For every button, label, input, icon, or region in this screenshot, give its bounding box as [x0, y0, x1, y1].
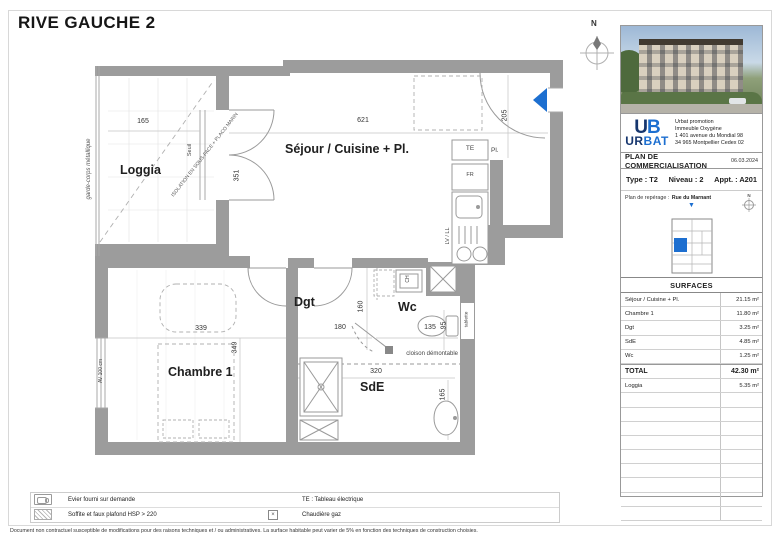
- hatch-icon: [31, 508, 65, 523]
- disclaimer-text: Document non contractuel susceptible de …: [10, 528, 755, 534]
- table-row: Dgt3.25 m²: [621, 321, 762, 335]
- label-ch: CH: [405, 264, 411, 294]
- title-block-panel: UB URBAT Urbat promotion Immeuble Oxygèn…: [620, 25, 763, 497]
- note-av: AV 100 cm: [98, 350, 104, 392]
- table-row: Chambre 111.80 m²: [621, 307, 762, 321]
- table-row-empty: [621, 464, 762, 478]
- dim-chambre-h: 349: [232, 332, 239, 364]
- legend-te-cell: [265, 493, 299, 508]
- dim-entree: 205: [502, 100, 509, 132]
- surface-value: 5.35 m²: [721, 383, 762, 389]
- key-plan: [665, 217, 719, 275]
- company-address: Urbat promotion Immeuble Oxygène 1 401 a…: [673, 119, 762, 148]
- table-row: SdE4.85 m²: [621, 336, 762, 350]
- surface-label: Chambre 1: [621, 307, 721, 320]
- address-line: 1 401 avenue du Mondial 98: [675, 133, 762, 140]
- dim-wc-h: 95: [441, 310, 448, 342]
- unit-appt: Appt. : A201: [714, 175, 757, 184]
- logo-word-bat: BAT: [644, 134, 669, 148]
- surface-value: 11.80 m²: [721, 311, 762, 317]
- unit-type: Type : T2: [626, 175, 658, 184]
- label-pl: Pl.: [491, 147, 499, 154]
- dim-dgt-h: 160: [358, 291, 365, 323]
- table-row-empty: [621, 507, 762, 521]
- surface-label: Loggia: [621, 379, 721, 392]
- unit-info-row: Type : T2 Niveau : 2 Appt. : A201: [621, 169, 762, 191]
- mini-compass-icon: [742, 198, 756, 212]
- boiler-icon: ×: [265, 508, 299, 523]
- table-row-empty: [621, 493, 762, 507]
- plan-title: PLAN DE COMMERCIALISATION: [625, 152, 731, 170]
- reperage-block: Plan de repérage : Rue du Marnant ▼ N: [621, 191, 762, 277]
- legend-evier: Evier fourni sur demande: [65, 493, 265, 508]
- room-label-wc: Wc: [398, 300, 417, 314]
- surface-value: 42.30 m²: [721, 368, 762, 375]
- surface-value: 3.25 m²: [721, 325, 762, 331]
- plan-title-row: PLAN DE COMMERCIALISATION 06.03.2024: [621, 152, 762, 169]
- dim-sde-w: 320: [358, 368, 394, 375]
- table-row-empty: [621, 393, 762, 407]
- logo-row: UB URBAT Urbat promotion Immeuble Oxygèn…: [621, 113, 762, 152]
- hob-burner: [473, 247, 487, 261]
- table-row-empty: [621, 478, 762, 492]
- surface-label: Wc: [621, 350, 721, 363]
- surface-label: SdE: [621, 336, 721, 349]
- legend: Evier fourni sur demande TE : Tableau él…: [30, 492, 560, 523]
- unit-niveau: Niveau : 2: [669, 175, 704, 184]
- legend-te: TE : Tableau électrique: [299, 493, 559, 508]
- dim-chambre-w: 339: [183, 325, 219, 332]
- table-row-empty: [621, 450, 762, 464]
- plan-date: 06.03.2024: [731, 158, 758, 164]
- road: [621, 104, 762, 113]
- entrance-arrow: [533, 88, 547, 112]
- address-line: 34 965 Montpellier Cedex 02: [675, 140, 762, 147]
- legend-chaudiere: Chaudière gaz: [299, 508, 559, 523]
- dim-sde-h: 165: [440, 379, 447, 411]
- north-compass-icon: [580, 36, 614, 70]
- room-label-loggia: Loggia: [120, 163, 161, 177]
- hob-burner: [457, 247, 471, 261]
- room-label-dgt: Dgt: [294, 295, 315, 309]
- surface-value: 21.15 m²: [721, 297, 762, 303]
- dim-loggia-w: 165: [125, 118, 161, 125]
- address-line: Urbat promotion: [675, 119, 762, 126]
- table-row: Séjour / Cuisine + Pl.21.15 m²: [621, 293, 762, 307]
- mini-north-compass: N: [741, 193, 757, 213]
- table-row: Loggia5.35 m²: [621, 379, 762, 393]
- legend-soffite: Soffite et faux plafond HSP > 220: [65, 508, 265, 523]
- label-fr: FR: [452, 172, 488, 178]
- highlighted-unit: [674, 238, 687, 252]
- note-seuil: Seuil: [187, 134, 193, 166]
- bed: [158, 344, 234, 442]
- surface-label: Séjour / Cuisine + Pl.: [621, 293, 721, 306]
- table-row-empty: [621, 408, 762, 422]
- surface-value: 1.25 m²: [721, 353, 762, 359]
- label-te: TE: [452, 145, 488, 152]
- dim-sejour-w: 621: [345, 117, 381, 124]
- dim-dgt-w: 180: [322, 324, 358, 331]
- note-cloison: cloison démontable: [380, 351, 458, 357]
- logo-word-ur: UR: [625, 134, 643, 148]
- note-tablette: tablette: [465, 301, 470, 339]
- surfaces-header: SURFACES: [621, 278, 762, 293]
- surface-value: 4.85 m²: [721, 339, 762, 345]
- building-photo: [621, 26, 762, 113]
- table-row-empty: [621, 422, 762, 436]
- table-row-empty: [621, 436, 762, 450]
- note-garde-corps: garde-corps métallique: [86, 126, 92, 212]
- car: [729, 98, 746, 104]
- surface-label: TOTAL: [621, 365, 721, 378]
- table-row-total: TOTAL42.30 m²: [621, 364, 762, 379]
- room-label-sejour: Séjour / Cuisine + Pl.: [285, 142, 409, 156]
- room-label-sde: SdE: [360, 380, 384, 394]
- sink-icon: [31, 493, 65, 508]
- dim-loggia-door: 351: [234, 160, 241, 192]
- table-row: Wc1.25 m²: [621, 350, 762, 364]
- surfaces-table: SURFACES Séjour / Cuisine + Pl.21.15 m² …: [621, 277, 762, 521]
- surface-label: Dgt: [621, 321, 721, 334]
- urbat-logo: UB URBAT: [621, 119, 673, 147]
- north-label: N: [591, 19, 597, 28]
- room-label-chambre: Chambre 1: [168, 365, 233, 379]
- label-lv-ll: LV / LL: [445, 214, 451, 258]
- address-line: Immeuble Oxygène: [675, 126, 762, 133]
